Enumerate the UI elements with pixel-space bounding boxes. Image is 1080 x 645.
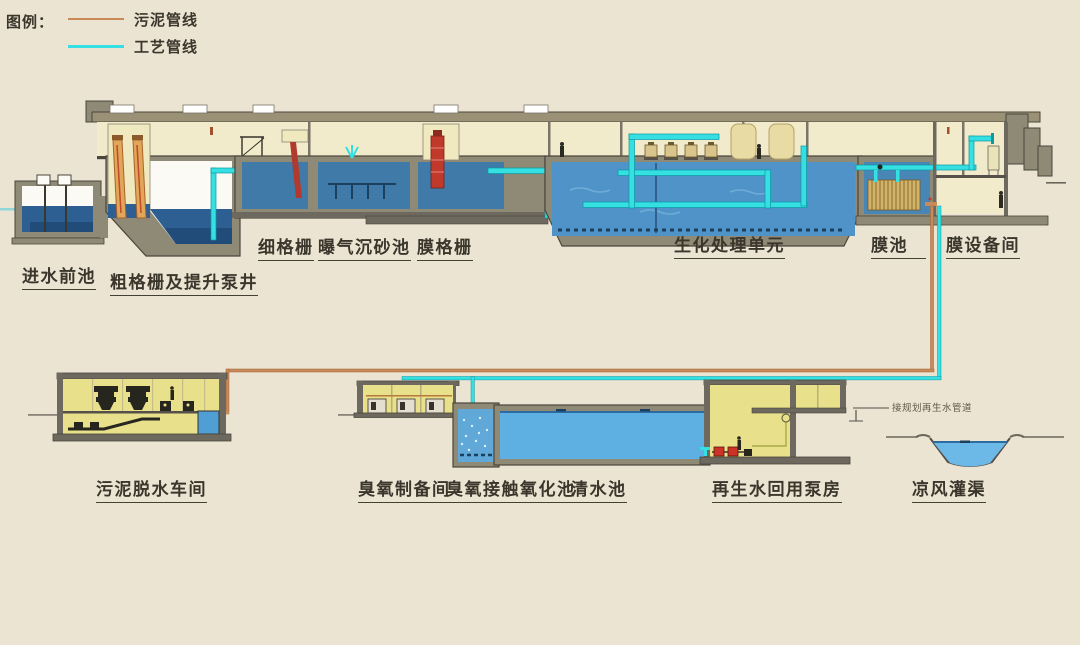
legend-title: 图例： xyxy=(6,10,54,55)
label-ozone-contact-oxidation-tank: 臭氧接触氧化池 xyxy=(446,475,576,503)
label-sludge-dewatering-workshop: 污泥脱水车间 xyxy=(96,475,207,503)
legend-label-sludge: 污泥管线 xyxy=(134,9,198,30)
label-membrane-equipment-room: 膜设备间 xyxy=(946,231,1020,259)
sludge-dewatering-building xyxy=(28,373,231,441)
sludge-pipeline-swatch xyxy=(68,18,124,20)
plant-cross-section-diagram xyxy=(0,0,1080,645)
gallery-interior xyxy=(97,122,1006,159)
clear-water-tank-structure xyxy=(494,405,710,465)
lower-section xyxy=(28,373,1064,467)
label-fine-screen: 细格栅 xyxy=(258,233,314,261)
reuse-pump-house xyxy=(700,380,850,464)
legend-label-process: 工艺管线 xyxy=(134,36,198,57)
label-membrane-screen: 膜格栅 xyxy=(417,233,473,261)
legend-row-sludge: 污泥管线 xyxy=(68,10,198,28)
legend-row-process: 工艺管线 xyxy=(68,37,198,55)
pipeline-annotation-leader xyxy=(849,408,889,421)
inlet-forebay-structure xyxy=(0,175,108,244)
irrigation-channel xyxy=(886,435,1064,467)
ozone-generators xyxy=(368,399,444,413)
legend: 图例： 污泥管线 工艺管线 xyxy=(6,10,198,55)
label-coarse-screen-lift-pump-well: 粗格栅及提升泵井 xyxy=(110,268,258,296)
label-clear-water-tank: 清水池 xyxy=(571,475,627,503)
label-reuse-pump-house: 再生水回用泵房 xyxy=(712,475,842,503)
ozone-preparation-building xyxy=(338,381,460,418)
label-irrigation-channel: 凉风灌渠 xyxy=(912,475,986,503)
plant-section-diagram-page: 图例： 污泥管线 工艺管线 进水前池 粗格栅及提升泵井 细格栅 曝气沉砂池 膜格… xyxy=(0,0,1080,645)
label-ozone-preparation-room: 臭氧制备间 xyxy=(358,475,451,503)
label-bio-treatment-unit: 生化处理单元 xyxy=(674,231,785,259)
process-pipeline-swatch xyxy=(68,45,124,48)
annotation-planned-reclaimed-water-pipeline: 接规划再生水管道 xyxy=(892,400,972,414)
label-aerated-grit-chamber: 曝气沉砂池 xyxy=(318,233,411,261)
label-inlet-forebay: 进水前池 xyxy=(22,262,96,290)
label-membrane-tank: 膜池 xyxy=(871,231,926,259)
membrane-tank-structure xyxy=(856,156,940,220)
ozone-contact-tank xyxy=(453,403,499,467)
